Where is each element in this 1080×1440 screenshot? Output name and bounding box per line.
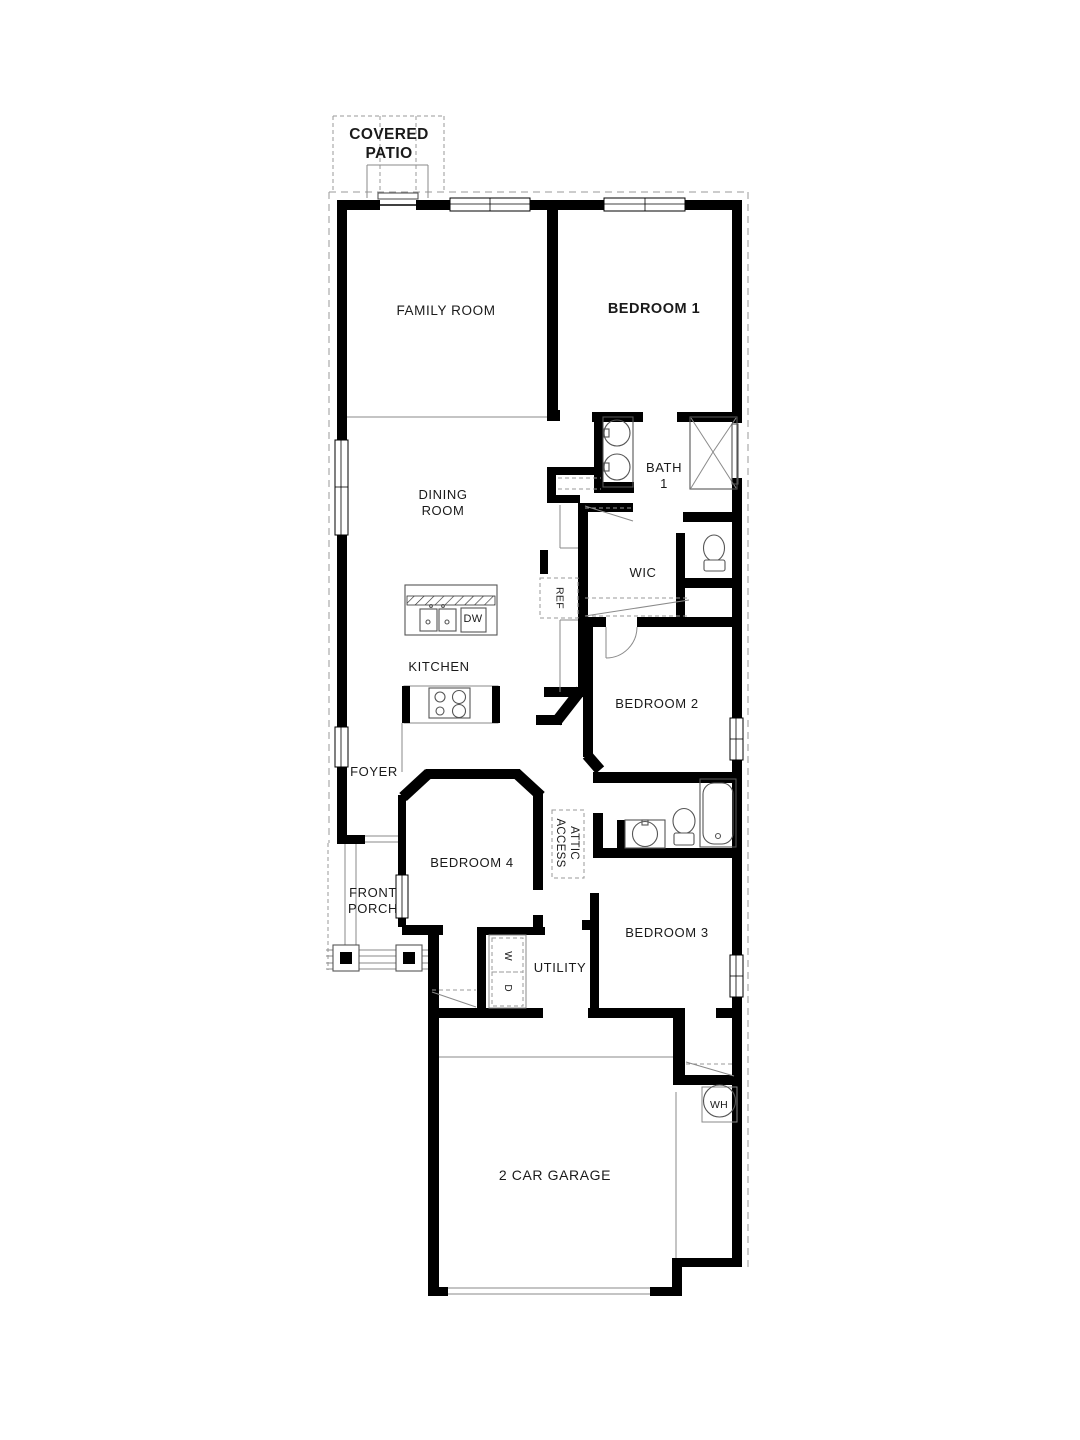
floor-plan-page: COVEREDPATIOFAMILY ROOMBEDROOM 1BATH1DIN… (0, 0, 1080, 1440)
roof-outline-dashed (329, 192, 748, 1270)
kitchen-range (402, 686, 500, 723)
exterior-walls (337, 200, 742, 1296)
shower (690, 417, 738, 489)
bath2-toilet (673, 809, 695, 846)
bathtub (700, 779, 736, 847)
floor-plan-drawing (0, 0, 1080, 1440)
patio-sliding-door (378, 193, 418, 205)
bath2-vanity (625, 820, 665, 848)
bedroom-3-closet-shelf (686, 1062, 734, 1076)
bath1-vanity (603, 417, 633, 487)
wic-shelving (585, 506, 689, 616)
attic-access-box (552, 810, 584, 878)
washer-dryer (489, 935, 526, 1008)
dishwasher (461, 608, 486, 632)
front-door-threshold (365, 836, 398, 842)
interior-walls (398, 210, 742, 1085)
refrigerator (540, 578, 578, 618)
porch-columns (333, 945, 422, 971)
water-heater (702, 1085, 737, 1122)
kitchen-island (405, 585, 497, 635)
bath1-toilet (704, 535, 726, 571)
covered-patio-outline (333, 116, 444, 198)
bedroom-2-door-swing (606, 627, 637, 658)
